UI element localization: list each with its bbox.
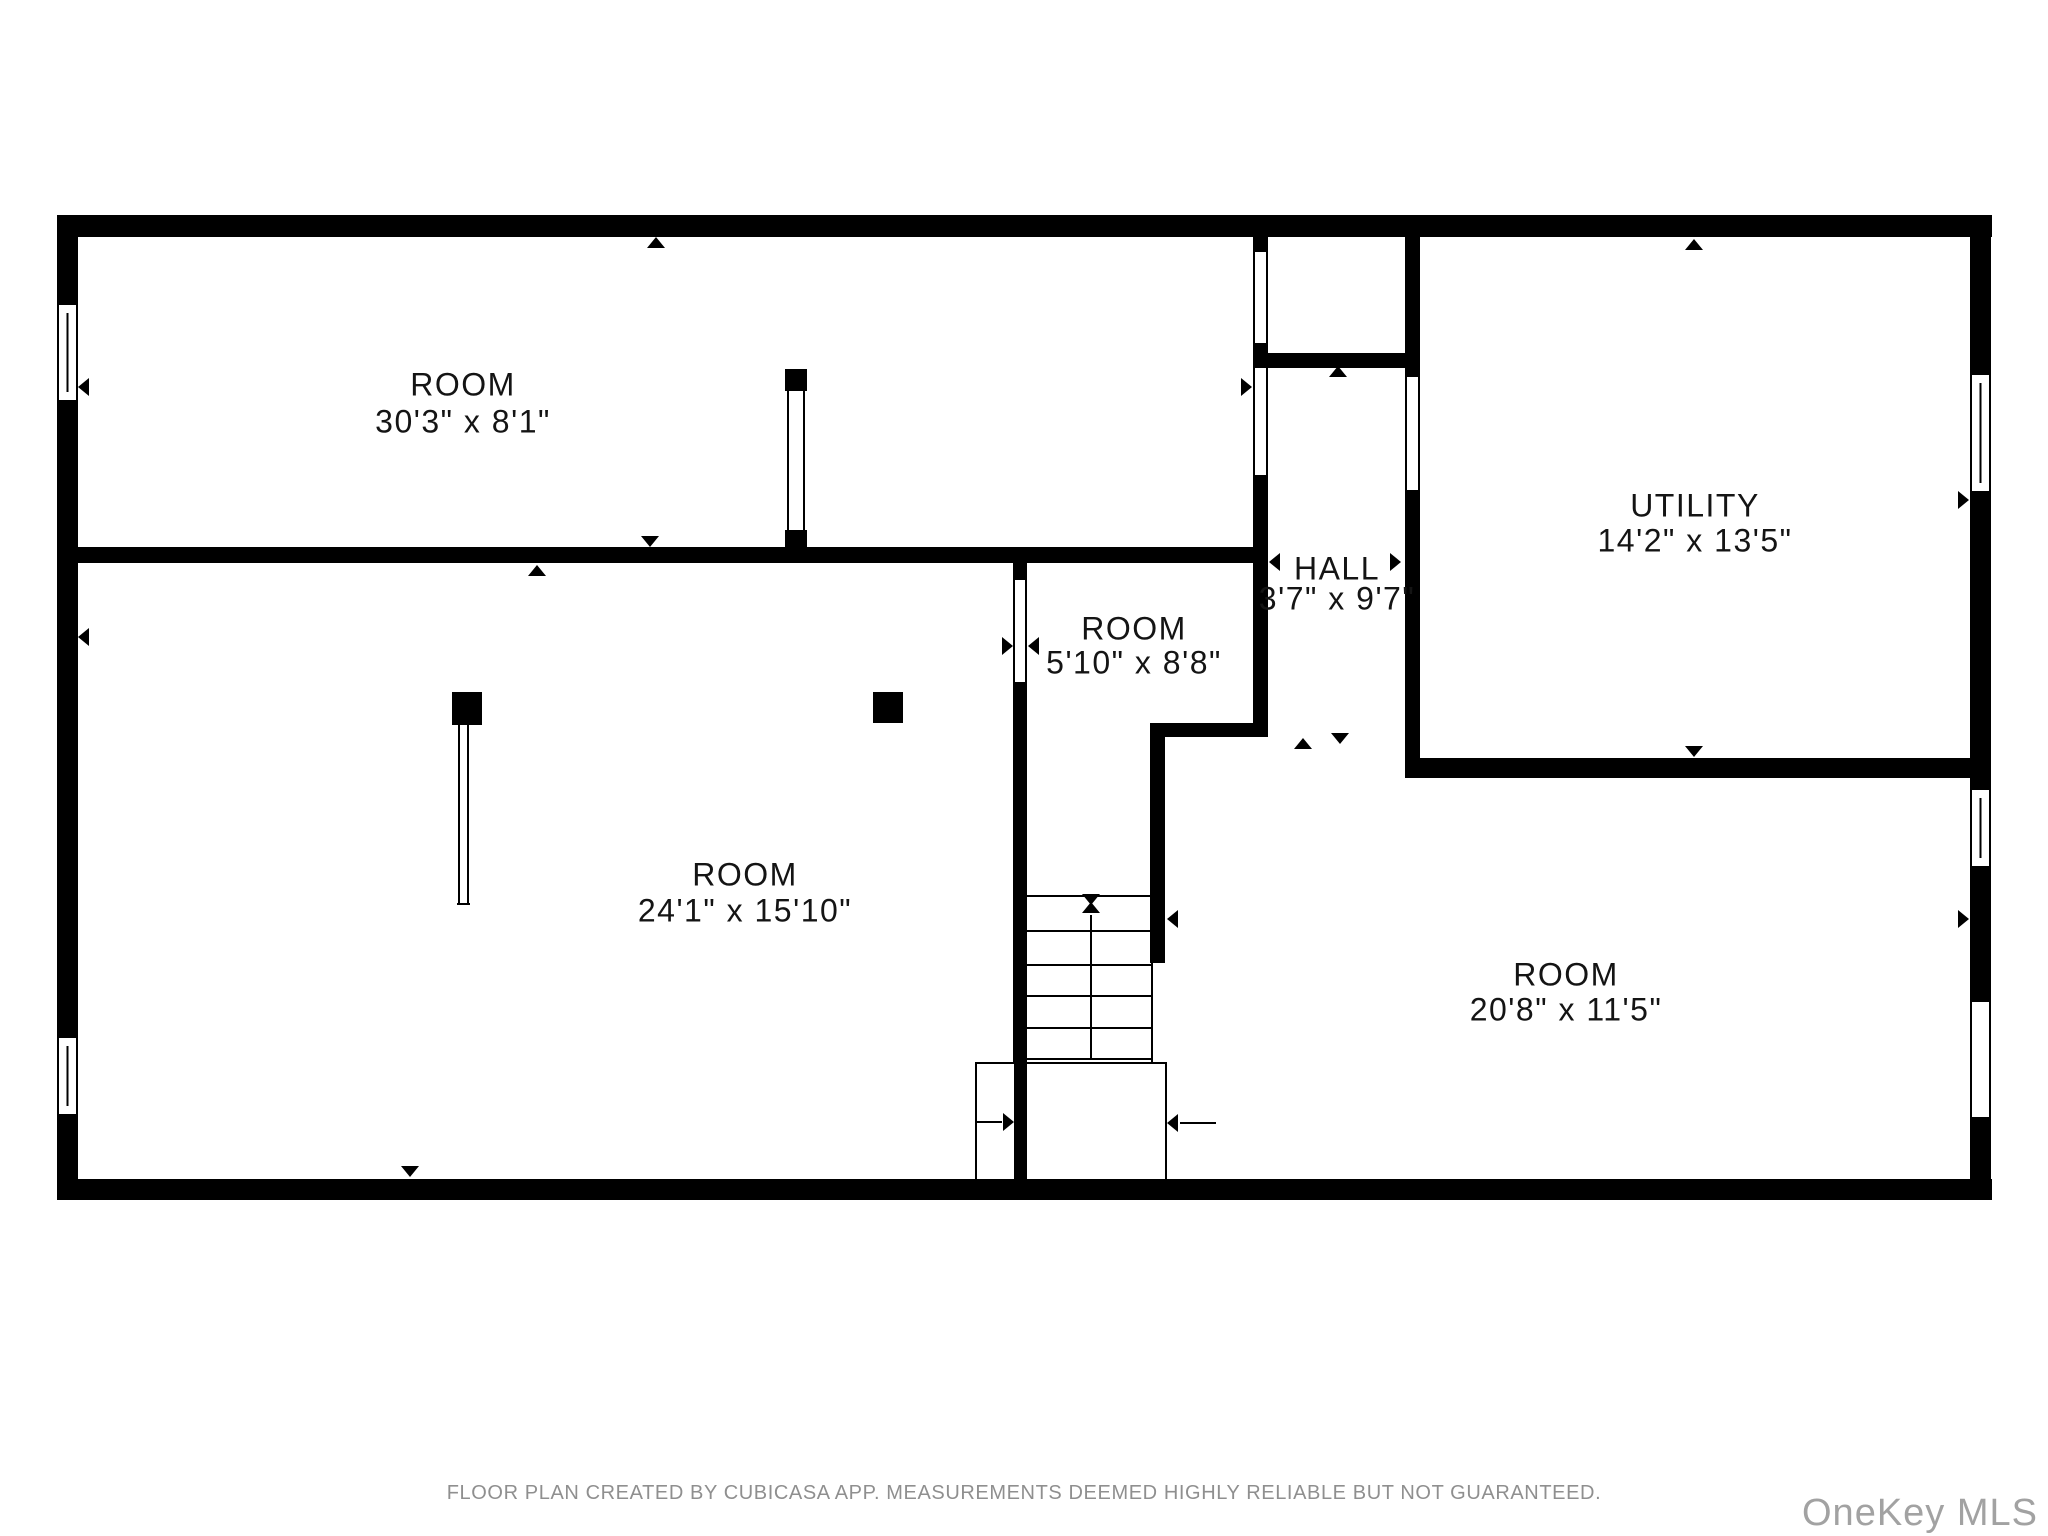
- room-large-label: ROOM: [692, 856, 798, 892]
- measure-arrow: [1002, 637, 1013, 655]
- wall: [1014, 1063, 1027, 1180]
- watermark-onekey-mls: OneKey MLS: [1802, 1492, 2038, 1535]
- measure-arrow: [1082, 902, 1100, 913]
- measure-arrow: [78, 378, 89, 396]
- measure-arrow: [1241, 378, 1252, 396]
- wall: [785, 369, 807, 391]
- room-right-label: ROOM: [1513, 956, 1619, 992]
- measure-arrow: [528, 565, 546, 576]
- measure-arrow: [1331, 733, 1349, 744]
- wall: [1253, 353, 1420, 368]
- room-right-dimensions: 20'8" x 11'5": [1470, 991, 1663, 1027]
- wall: [57, 215, 1992, 237]
- wall: [873, 692, 903, 723]
- measure-arrow: [1028, 637, 1039, 655]
- room-small-label: ROOM: [1081, 610, 1187, 646]
- measure-arrow: [1269, 553, 1280, 571]
- wall: [1150, 723, 1268, 737]
- footer-disclaimer: FLOOR PLAN CREATED BY CUBICASA APP. MEAS…: [0, 1482, 2048, 1505]
- measure-arrow: [1958, 491, 1969, 509]
- measure-arrow: [1390, 553, 1401, 571]
- room-top-label: ROOM: [410, 366, 516, 402]
- wall: [57, 547, 1268, 563]
- measure-arrow: [647, 237, 665, 248]
- room-small-dimensions: 5'10" x 8'8": [1046, 644, 1222, 680]
- wall: [1013, 563, 1027, 580]
- floorplan-page: ROOM30'3" x 8'1"ROOM24'1" x 15'10"ROOM5'…: [0, 0, 2048, 1536]
- measure-arrow: [1958, 910, 1969, 928]
- room-top-dimensions: 30'3" x 8'1": [375, 403, 551, 439]
- wall: [57, 1179, 1992, 1200]
- wall: [452, 692, 482, 725]
- wall: [1405, 490, 1420, 758]
- measure-arrow: [78, 628, 89, 646]
- measure-arrow: [1685, 239, 1703, 250]
- wall: [785, 530, 807, 552]
- wall: [1253, 233, 1268, 252]
- measure-arrow: [1167, 1114, 1178, 1132]
- measure-arrow: [1294, 738, 1312, 749]
- utility-label: UTILITY: [1630, 487, 1760, 523]
- wall: [1405, 758, 1991, 778]
- wall: [1405, 233, 1420, 377]
- door-opening: [1970, 1002, 1991, 1117]
- measure-arrow: [641, 536, 659, 547]
- room-large-dimensions: 24'1" x 15'10": [638, 892, 852, 928]
- measure-arrow: [1685, 746, 1703, 757]
- measure-arrow: [401, 1166, 419, 1177]
- utility-dimensions: 14'2" x 13'5": [1598, 522, 1793, 558]
- wall: [1150, 737, 1165, 963]
- floor-plan-svg: ROOM30'3" x 8'1"ROOM24'1" x 15'10"ROOM5'…: [0, 0, 2048, 1536]
- measure-arrow: [1167, 910, 1178, 928]
- hall-dimensions: 3'7" x 9'7": [1259, 580, 1415, 616]
